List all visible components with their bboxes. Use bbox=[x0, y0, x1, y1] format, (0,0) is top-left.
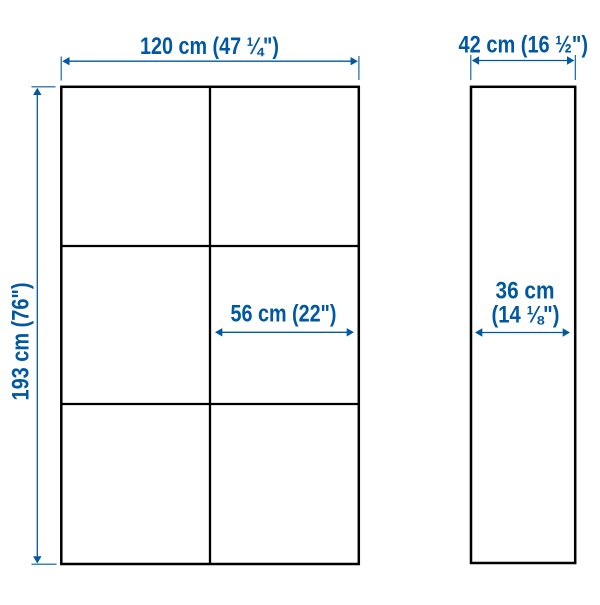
svg-text:193 cm (76"): 193 cm (76") bbox=[8, 283, 35, 401]
svg-text:(14 ⅛"): (14 ⅛") bbox=[492, 301, 560, 328]
svg-text:56 cm (22"): 56 cm (22") bbox=[231, 301, 337, 328]
svg-text:42 cm (16 ½"): 42 cm (16 ½") bbox=[459, 32, 589, 59]
svg-text:120 cm (47 ¼"): 120 cm (47 ¼") bbox=[140, 33, 279, 60]
svg-text:36 cm: 36 cm bbox=[496, 277, 555, 304]
